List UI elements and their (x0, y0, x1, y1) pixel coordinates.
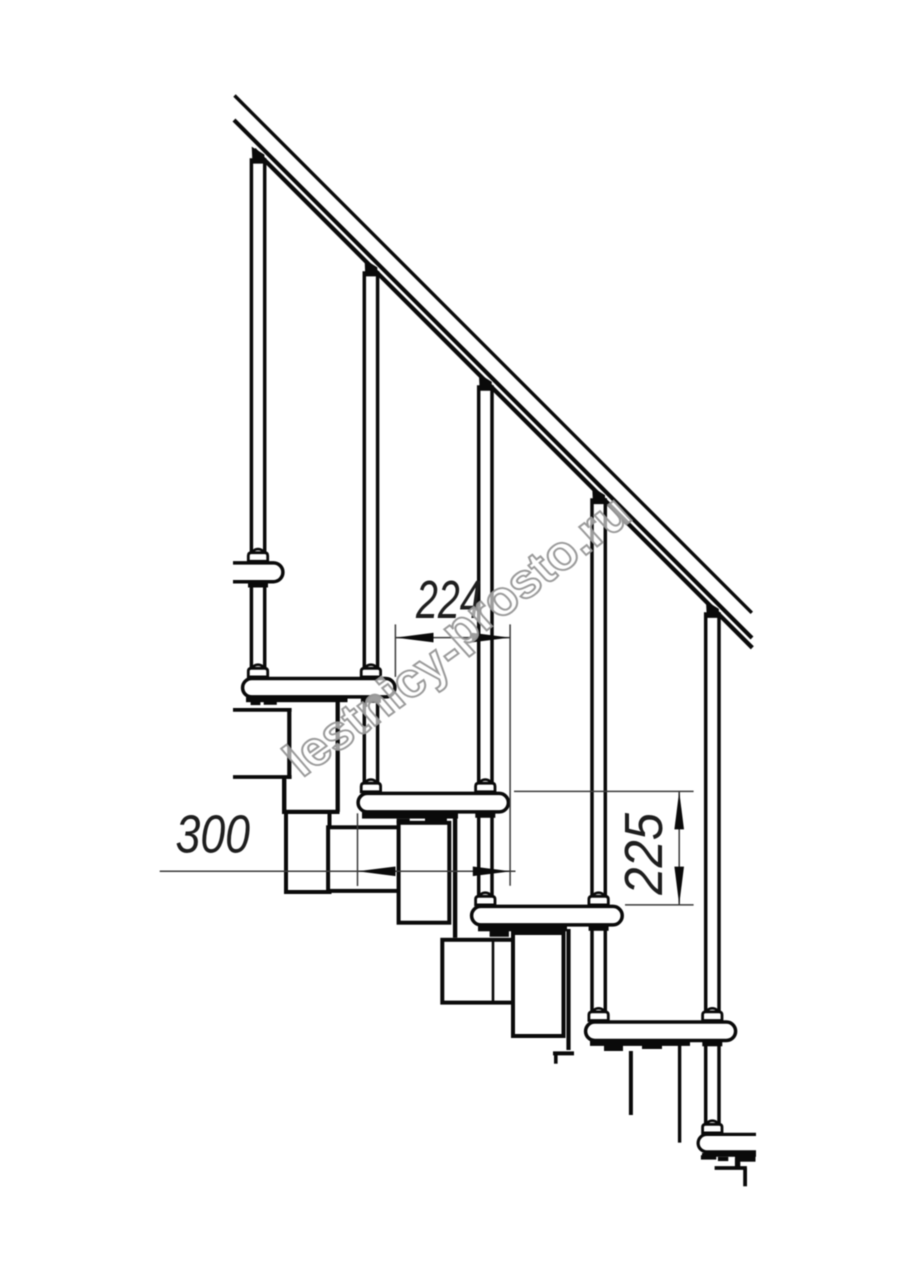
svg-text:300: 300 (176, 805, 251, 865)
svg-text:225: 225 (613, 813, 674, 896)
